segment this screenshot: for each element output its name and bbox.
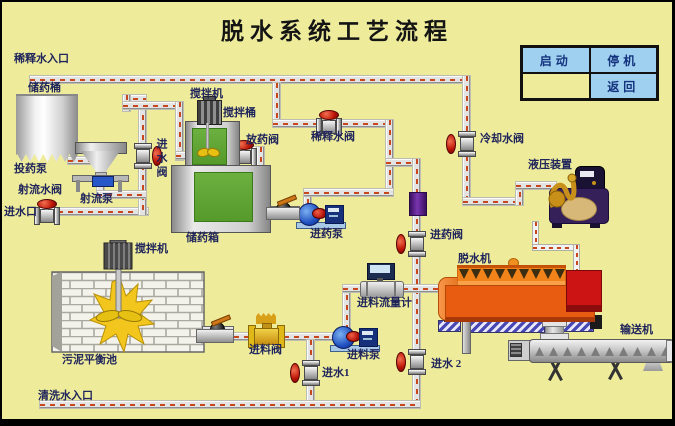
- page-title: 脱水系统工艺流程: [2, 12, 672, 46]
- sludge-balance-pool: [46, 240, 208, 360]
- valve-flange: [134, 163, 152, 169]
- label-mixer-top: 搅拌机: [190, 89, 223, 100]
- hydraulic-dot: [592, 181, 596, 185]
- valve-flange: [408, 369, 426, 375]
- label-jet-water-valve: 射流水阀: [18, 185, 62, 196]
- valve-flange: [458, 151, 476, 157]
- pipe-segment: [123, 102, 183, 109]
- hydraulic-gold-pump: [545, 169, 579, 209]
- valve-handle: [446, 134, 456, 154]
- pipe-segment: [463, 198, 523, 205]
- label-chem-barrel: 储药桶: [28, 83, 61, 94]
- label-chem-tank: 储药箱: [186, 233, 219, 244]
- jet-pump-leg: [118, 180, 122, 192]
- valve-flange: [251, 148, 257, 166]
- pump-display: [328, 208, 339, 212]
- conveyor-end-cap: [666, 340, 675, 362]
- label-water-inlet-1: 进水1: [322, 368, 350, 379]
- hydraulic-screen: [580, 171, 594, 177]
- valve-body: [410, 237, 424, 251]
- pipe-segment: [30, 76, 470, 83]
- dewaterer-red-box: [566, 270, 602, 312]
- valve-body: [136, 149, 150, 163]
- pipe-segment: [40, 401, 420, 408]
- pool-left-wall: [52, 272, 62, 352]
- label-conveyor: 输送机: [620, 325, 653, 336]
- conveyor-motor-grille: [510, 343, 522, 357]
- hydraulic-unit[interactable]: [545, 165, 610, 231]
- pipe-segment: [304, 189, 393, 196]
- label-water-inlet-2: 进水 2: [431, 359, 461, 370]
- scada-screen: 脱水系统工艺流程: [0, 0, 675, 426]
- control-panel: 启动 停机 返回: [520, 45, 659, 101]
- pipe-segment: [386, 120, 393, 196]
- mixer-motor[interactable]: [197, 100, 222, 125]
- dewaterer-screw-band: [457, 265, 566, 287]
- valve-body: [40, 209, 54, 223]
- chemical-tank-liquid: [194, 172, 253, 222]
- conveyor-screw: [529, 339, 672, 361]
- label-cooling-valve: 冷却水阀: [480, 134, 524, 145]
- valve-body: [304, 366, 318, 380]
- screw-conveyor[interactable]: [506, 336, 675, 380]
- start-button[interactable]: 启动: [522, 47, 590, 73]
- feed-valve-body: [254, 328, 279, 345]
- back-button[interactable]: 返回: [590, 73, 658, 99]
- water-inlet-1-valve[interactable]: [297, 359, 323, 385]
- label-feed-valve: 进料阀: [249, 345, 282, 356]
- jet-water-valve[interactable]: [34, 200, 60, 226]
- label-hydraulic-unit: 液压装置: [528, 160, 572, 171]
- chem-feed-pump[interactable]: [296, 201, 344, 228]
- flow-meter-flange: [366, 281, 368, 296]
- pool-mixer-motor[interactable]: [104, 243, 132, 269]
- valve-body: [460, 137, 474, 151]
- feed-pump[interactable]: [330, 324, 378, 351]
- feed-valve[interactable]: [248, 311, 284, 347]
- label-mixing-barrel: 搅拌桶: [223, 108, 256, 119]
- water-inlet-valve[interactable]: [129, 142, 155, 168]
- label-jet-pump: 射流泵: [80, 194, 113, 205]
- panel-empty-cell: [522, 73, 590, 99]
- valve-handle: [396, 234, 406, 254]
- valve-flange: [408, 251, 426, 257]
- flow-meter-flange: [394, 281, 396, 296]
- label-inlet-valve: 进水阀: [155, 138, 166, 180]
- pipe-segment: [533, 245, 579, 250]
- water-inlet-2-valve[interactable]: [403, 348, 429, 374]
- valve-handle: [290, 363, 300, 383]
- valve-handle: [396, 352, 406, 372]
- valve-handle: [37, 199, 57, 209]
- stop-button[interactable]: 停机: [590, 47, 658, 73]
- label-chem-pump: 进药泵: [310, 229, 343, 240]
- mixing-barrel-liquid: [192, 128, 227, 165]
- pool-outlet-pipe: [196, 329, 234, 343]
- jet-pump[interactable]: [72, 142, 128, 194]
- valve-body: [410, 355, 424, 369]
- label-feed-flow-meter: 进料流量计: [357, 298, 412, 309]
- label-balance-pool: 污泥平衡池: [62, 355, 117, 366]
- label-feed-pump: 进料泵: [347, 350, 380, 361]
- valve-handle: [319, 110, 339, 120]
- valve-flange: [302, 380, 320, 386]
- label-wash-inlet: 清洗水入口: [38, 391, 93, 402]
- label-dewaterer: 脱水机: [458, 254, 491, 265]
- label-dilution-valve: 稀释水阀: [311, 132, 355, 143]
- label-dosing-pump: 投药泵: [14, 164, 47, 175]
- chem-feed-valve[interactable]: [403, 230, 429, 256]
- pipe-segment: [224, 333, 346, 340]
- pump-display: [362, 331, 373, 335]
- jet-pump-box: [92, 176, 114, 187]
- cooling-water-valve[interactable]: [453, 130, 479, 156]
- chemical-tank-outlet: [266, 207, 300, 220]
- label-release-valve: 放药阀: [246, 135, 279, 146]
- label-dilution-inlet: 稀释水入口: [14, 54, 69, 65]
- jet-pump-leg: [76, 180, 80, 192]
- pump-display-line: [363, 338, 372, 340]
- flow-meter-screen: [370, 265, 390, 273]
- chemical-barrel: [16, 94, 78, 162]
- label-mixer-pool: 搅拌机: [135, 244, 168, 255]
- feed-flow-meter[interactable]: [360, 263, 404, 297]
- label-chem-feed-valve: 进药阀: [430, 230, 463, 241]
- label-water-inlet: 进水口: [4, 207, 37, 218]
- pump-display-line: [329, 215, 338, 217]
- mixer-shaft: [116, 268, 121, 318]
- valve-flange: [54, 207, 60, 225]
- dosing-unit[interactable]: [409, 192, 427, 216]
